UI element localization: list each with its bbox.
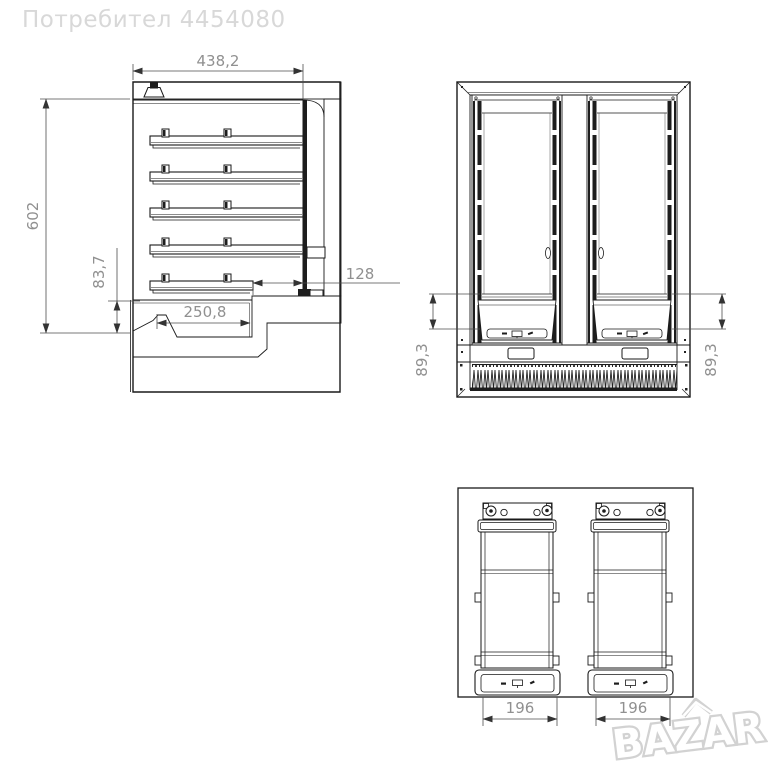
side-view-dimensions: 438,2 602 83,7 250,8 128 [24,52,400,333]
dim-front-left: 89,3 [413,343,431,376]
handle-recess [307,247,325,258]
dim-door-offset: 128 [346,265,375,283]
front-view: 89,3 89,3 [413,82,726,397]
top-cap-detail [144,88,164,98]
door-handle [599,248,604,259]
shelves [150,129,303,293]
dim-base-height: 83,7 [90,255,108,288]
technical-drawing-page: Потребител 4454080 [0,0,768,768]
bazar-logo-watermark: BAZAR [594,686,768,768]
logo-text: BAZAR [610,704,767,768]
ventilation-grille [472,365,677,388]
front-left-door [472,95,562,345]
refrigerator-technical-drawing: 438,2 602 83,7 250,8 128 [0,0,768,768]
door-handle [546,248,551,259]
door-profile [303,100,308,296]
dim-floor-depth: 250,8 [184,303,227,321]
dim-top-width: 438,2 [197,52,240,70]
dim-back-door-left: 196 [506,699,535,717]
dim-front-right: 89,3 [702,343,720,376]
side-section-view: 438,2 602 83,7 250,8 128 [24,52,400,392]
back-left-door [475,503,560,695]
back-right-door [588,503,673,695]
front-right-door [587,95,677,345]
dim-left-height: 602 [24,202,42,231]
